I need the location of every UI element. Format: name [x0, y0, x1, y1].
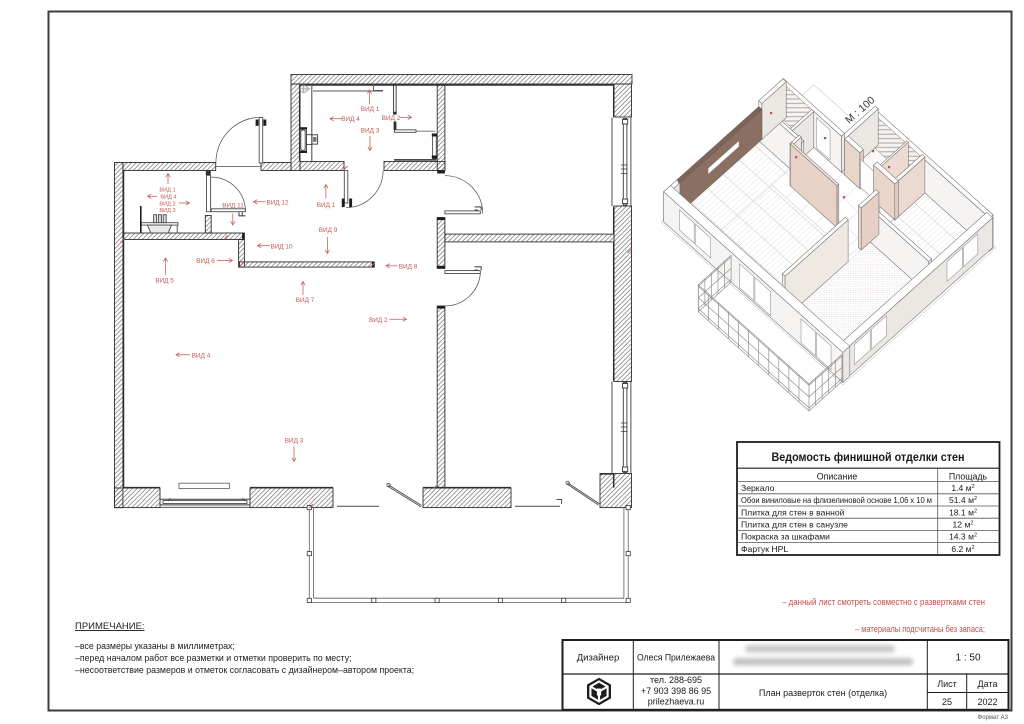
svg-text:ВИД 3: ВИД 3 [285, 438, 304, 445]
svg-text:2022: 2022 [977, 697, 997, 707]
svg-text:1 : 50: 1 : 50 [955, 653, 980, 664]
svg-text:Покраска за шкафами: Покраска за шкафами [741, 532, 830, 542]
svg-text:ВИД 2: ВИД 2 [159, 201, 175, 207]
svg-text:–все размеры указаны в миллиме: –все размеры указаны в миллиметрах; [75, 641, 235, 651]
svg-text:–несоответствие размеров и отм: –несоответствие размеров и отметок согла… [75, 665, 414, 675]
svg-text:14.3 м2: 14.3 м2 [949, 532, 977, 542]
svg-text:ВИД 10: ВИД 10 [270, 243, 293, 250]
svg-text:Зеркало: Зеркало [741, 483, 775, 493]
svg-text:– данный лист смотреть совмест: – данный лист смотреть совместно с разве… [782, 597, 985, 607]
svg-text:ВИД 1: ВИД 1 [361, 106, 380, 113]
svg-text:Олеся Прилежаева: Олеся Прилежаева [637, 653, 715, 663]
svg-text:Ведомость финишной отделки сте: Ведомость финишной отделки стен [772, 450, 965, 464]
svg-text:ВИД 1: ВИД 1 [159, 188, 175, 194]
svg-text:Дизайнер: Дизайнер [577, 653, 620, 664]
svg-text:18.1 м2: 18.1 м2 [949, 507, 977, 517]
svg-text:ВИД 3: ВИД 3 [159, 208, 175, 214]
svg-text:Дата: Дата [978, 679, 998, 689]
svg-text:51.4 м2: 51.4 м2 [949, 495, 977, 505]
svg-text:План разверток стен (отделка): План разверток стен (отделка) [759, 688, 887, 698]
svg-text:ВИД 2: ВИД 2 [382, 115, 401, 122]
svg-text:ВИД 4: ВИД 4 [341, 116, 360, 123]
svg-text:ВИД 7: ВИД 7 [296, 297, 315, 304]
svg-text:ВИД 2: ВИД 2 [369, 317, 388, 324]
svg-text:Плитка для стен в ванной: Плитка для стен в ванной [741, 507, 845, 517]
svg-text:ВИД 5: ВИД 5 [155, 278, 174, 285]
svg-text:ВИД 9: ВИД 9 [319, 227, 338, 234]
svg-text:Плитка для стен в санузле: Плитка для стен в санузле [741, 520, 848, 530]
svg-text:ВИД 12: ВИД 12 [266, 200, 289, 207]
svg-text:Описание: Описание [817, 472, 858, 482]
svg-text:prilezhaeva.ru: prilezhaeva.ru [648, 697, 705, 707]
svg-text:–перед началом работ все разме: –перед началом работ все разметки и отме… [75, 653, 352, 663]
svg-text:ВИД 6: ВИД 6 [196, 258, 215, 265]
svg-text:ПРИМЕЧАНИЕ:: ПРИМЕЧАНИЕ: [75, 621, 145, 632]
svg-text:Обои виниловые на флизелиновой: Обои виниловые на флизелиновой основе 1,… [741, 495, 932, 505]
svg-text:Формат А3: Формат А3 [978, 715, 1009, 721]
svg-text:ВИД 4: ВИД 4 [160, 195, 176, 201]
svg-text:Фартук HPL: Фартук HPL [741, 544, 788, 554]
svg-text:ВИД 8: ВИД 8 [399, 263, 418, 270]
svg-text:12 м2: 12 м2 [953, 520, 974, 530]
svg-text:6.2 м2: 6.2 м2 [951, 544, 974, 554]
svg-text:1.4 м2: 1.4 м2 [951, 483, 974, 493]
svg-text:ВИД 3: ВИД 3 [361, 128, 380, 135]
svg-text:25: 25 [942, 697, 952, 707]
svg-text:тел. 288-695: тел. 288-695 [650, 675, 702, 685]
svg-text:ВИД 11: ВИД 11 [222, 203, 244, 210]
svg-text:– материалы подсчитаны без зап: – материалы подсчитаны без запаса; [855, 624, 985, 634]
svg-text:Лист: Лист [937, 679, 957, 689]
svg-text:+7 903 398 86 95: +7 903 398 86 95 [641, 686, 711, 696]
svg-text:Площадь: Площадь [949, 472, 988, 482]
svg-text:ВИД 4: ВИД 4 [192, 353, 211, 360]
svg-text:ВИД 1: ВИД 1 [317, 202, 336, 209]
